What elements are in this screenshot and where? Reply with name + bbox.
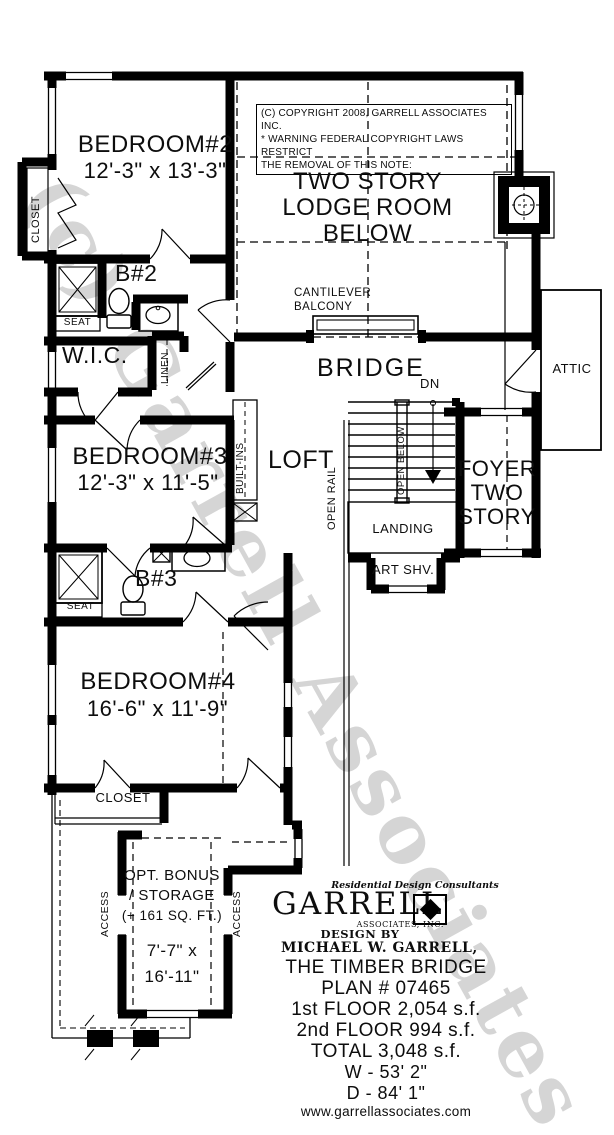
lodge-line3: BELOW <box>255 222 480 246</box>
open-rail-label: OPEN RAIL <box>327 467 338 530</box>
attic-label: ATTIC <box>546 362 598 375</box>
foyer-line1: FOYER <box>448 458 546 480</box>
plan-number: PLAN # 07465 <box>248 979 524 998</box>
plan-depth: D - 84' 1" <box>248 1084 524 1102</box>
bedroom2-dims: 12'-3" x 13'-3" <box>50 160 260 182</box>
bonus-line2: / STORAGE <box>113 888 231 903</box>
copyright-line1: (C) COPYRIGHT 2008, GARRELL ASSOCIATES I… <box>261 107 507 133</box>
floor-plan-page: (c) Garrell Associates <box>0 0 614 1135</box>
bonus-dims2: 16'-11" <box>113 968 231 985</box>
seat-b2-label: SEAT <box>55 318 100 328</box>
bonus-line1: OPT. BONUS <box>113 868 231 883</box>
bedroom4-dims: 16'-6" x 11'-9" <box>45 698 270 720</box>
bridge-label: BRIDGE <box>317 356 425 381</box>
art-shv-label: ART SHV. <box>372 563 434 576</box>
bath2-label: B#2 <box>115 262 157 285</box>
access-left-label: ACCESS <box>100 891 111 937</box>
foyer-line3: STORY <box>448 506 546 528</box>
linen-label: LINEN <box>161 352 171 384</box>
plan-width: W - 53' 2" <box>248 1063 524 1081</box>
bonus-dims1: 7'-7" x <box>113 942 231 959</box>
bath3-label: B#3 <box>135 567 177 590</box>
bedroom2-label: BEDROOM#2 <box>58 133 253 157</box>
foyer-line2: TWO <box>448 482 546 504</box>
seat-b3-label: SEAT <box>57 602 104 612</box>
plan-floor1: 1st FLOOR 2,054 s.f. <box>248 1000 524 1019</box>
bedroom3-label: BEDROOM#3 <box>55 445 245 469</box>
plan-website: www.garrellassociates.com <box>248 1105 524 1119</box>
bonus-line3: (+ 161 SQ. FT.) <box>110 909 234 923</box>
dn-label: DN <box>420 377 440 390</box>
open-below-label: OPEN BELOW <box>397 426 407 495</box>
wic-label: W.I.C. <box>62 344 128 367</box>
loft-label: LOFT <box>268 448 334 473</box>
lodge-line1: TWO STORY <box>255 170 480 194</box>
logo-designer: MICHAEL W. GARRELL, <box>281 941 441 955</box>
plan-title: THE TIMBER BRIDGE <box>248 958 524 977</box>
plan-floor2: 2nd FLOOR 994 s.f. <box>248 1021 524 1040</box>
bedroom4-label: BEDROOM#4 <box>52 670 264 694</box>
landing-label: LANDING <box>358 522 448 535</box>
lodge-line2: LODGE ROOM <box>255 196 480 220</box>
cantilever-line2: BALCONY <box>294 302 352 314</box>
copyright-note: (C) COPYRIGHT 2008, GARRELL ASSOCIATES I… <box>256 104 512 175</box>
copyright-line2: * WARNING FEDERAL COPYRIGHT LAWS RESTRIC… <box>261 133 507 159</box>
bedroom3-dims: 12'-3" x 11'-5" <box>48 472 248 494</box>
closet-bedroom4-label: CLOSET <box>78 791 168 804</box>
cantilever-line1: CANTILEVER <box>294 288 371 300</box>
closet-bedroom2-label: CLOSET <box>31 196 42 243</box>
plan-total: TOTAL 3,048 s.f. <box>248 1042 524 1061</box>
logo-design-by: DESIGN BY <box>300 929 420 941</box>
